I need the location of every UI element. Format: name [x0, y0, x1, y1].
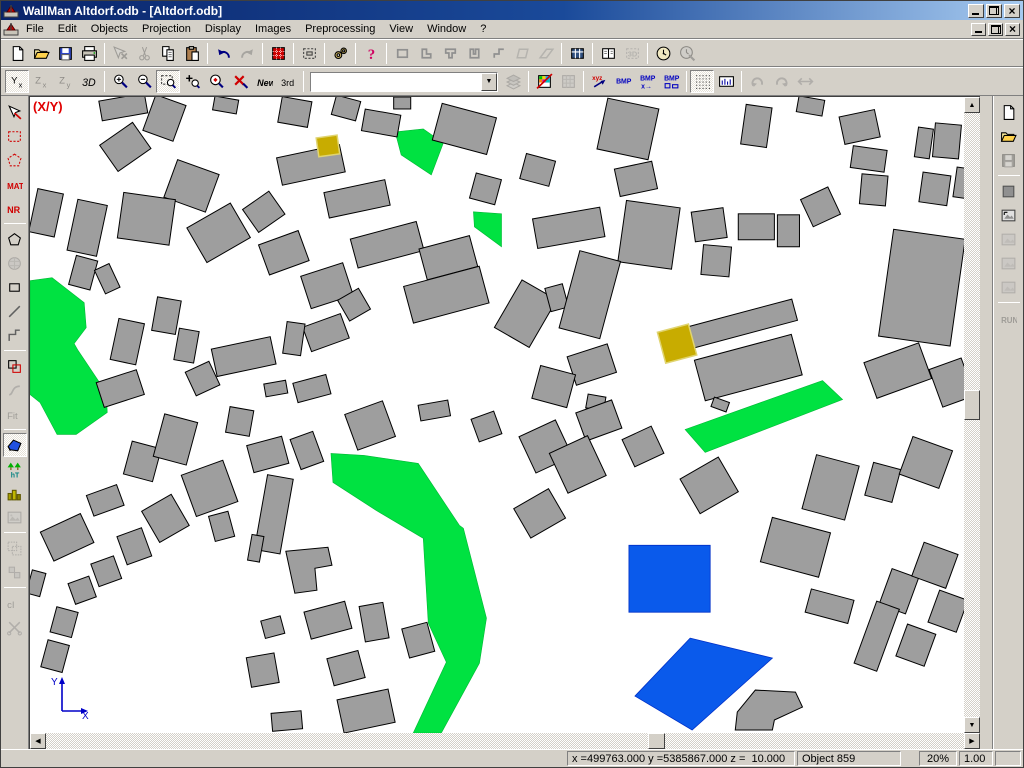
pixel-map-gray-button [556, 70, 580, 93]
svg-text:3D: 3D [627, 49, 637, 58]
vegetation-area[interactable] [30, 278, 107, 435]
settings-icon [332, 45, 349, 62]
toolbar-separator [4, 429, 26, 430]
building[interactable] [278, 97, 312, 127]
shape-rhombus-button [510, 42, 534, 65]
building[interactable] [520, 153, 556, 186]
building[interactable] [91, 556, 122, 587]
object-properties-button[interactable] [297, 42, 321, 65]
clock-edit-icon [679, 45, 696, 62]
curve-button [3, 378, 27, 402]
building[interactable] [303, 314, 350, 352]
zoom-reset-button[interactable] [228, 70, 252, 93]
paste-icon [184, 45, 201, 62]
view-zy-icon: Zy [57, 73, 74, 90]
ungroup-button [3, 560, 27, 584]
map-drawing[interactable] [30, 97, 964, 733]
building[interactable] [735, 690, 802, 730]
toolbar-separator [104, 43, 105, 64]
building[interactable] [99, 97, 148, 121]
new-icon [9, 45, 26, 62]
trees-icon: hT [6, 461, 23, 478]
vertical-scrollbar[interactable]: ▲ ▼ [964, 97, 980, 733]
building[interactable] [117, 528, 152, 565]
building[interactable] [760, 517, 830, 577]
building[interactable] [801, 187, 841, 227]
map-canvas[interactable]: (X/Y) Y X [30, 97, 964, 733]
copy-icon [160, 45, 177, 62]
building[interactable] [533, 207, 605, 248]
building[interactable] [110, 318, 144, 364]
building[interactable] [859, 174, 888, 206]
xyz-export-button[interactable]: xyz [587, 70, 611, 93]
building[interactable] [514, 489, 566, 538]
svg-text:BMP: BMP [616, 79, 632, 86]
shape-u-button[interactable] [462, 42, 486, 65]
axis-x-label: X [82, 711, 89, 719]
combine-objects-button[interactable] [3, 354, 27, 378]
minimize-icon [972, 13, 979, 15]
building[interactable] [865, 462, 901, 502]
help-button[interactable]: ? [359, 42, 383, 65]
building[interactable] [181, 460, 238, 516]
bmp-export-button[interactable]: BMPx→ [635, 70, 659, 93]
new-database-button[interactable] [997, 100, 1021, 124]
building[interactable] [30, 570, 46, 597]
building[interactable] [153, 414, 197, 465]
object-properties-icon [301, 45, 318, 62]
toolbar-separator [207, 43, 208, 64]
redo-icon [239, 45, 256, 62]
toolbar-separator [561, 43, 562, 64]
building[interactable] [896, 624, 936, 666]
building[interactable] [928, 590, 964, 632]
zoom-selected-button[interactable] [204, 70, 228, 93]
open-icon [33, 45, 50, 62]
table-icon [569, 45, 586, 62]
building[interactable] [226, 407, 254, 437]
bmp-button[interactable]: BMP [611, 70, 635, 93]
building[interactable] [40, 514, 94, 562]
building[interactable] [283, 322, 305, 356]
scroll-down-button[interactable]: ▼ [964, 717, 980, 733]
horizontal-scroll-thumb[interactable] [648, 733, 665, 749]
rotate-left-icon [749, 73, 766, 90]
ruler-icon [718, 73, 735, 90]
building[interactable] [331, 97, 360, 121]
database-toolbar: RUN [993, 96, 1023, 749]
building[interactable] [796, 97, 824, 116]
bmp-size-button[interactable]: BMP [659, 70, 683, 93]
layers-icon [505, 73, 522, 90]
building[interactable] [187, 203, 251, 263]
water-area[interactable] [629, 545, 710, 612]
grid-button[interactable] [690, 70, 714, 93]
open-database-button[interactable] [997, 124, 1021, 148]
svg-text:BMP: BMP [664, 75, 680, 82]
building[interactable] [701, 245, 732, 277]
toolbar-separator [4, 223, 26, 224]
save-database-icon [1000, 152, 1017, 169]
view-toolbar: YxZxZy3DNew3rd▼xyzBMPBMPx→BMP [1, 67, 1023, 96]
menu-projection[interactable]: Projection [135, 21, 198, 37]
building[interactable] [152, 297, 182, 335]
building[interactable] [850, 146, 887, 172]
building[interactable] [394, 97, 411, 109]
building[interactable] [350, 222, 424, 269]
new-button[interactable] [5, 42, 29, 65]
building[interactable] [261, 616, 285, 639]
bmp-export-icon: BMPx→ [639, 73, 656, 90]
shape-l-button[interactable] [414, 42, 438, 65]
select-polygon-button[interactable] [3, 148, 27, 172]
wallman-window: WallMan Altdorf.odb - [Altdorf.odb] × Fi… [0, 0, 1024, 768]
mdi-minimize-button[interactable] [971, 23, 986, 36]
building[interactable] [854, 601, 899, 671]
drawing-toolbar: MATNRFithTcI [1, 96, 29, 749]
window-title: WallMan Altdorf.odb - [Altdorf.odb] [23, 4, 968, 18]
toolbar-separator [386, 43, 387, 64]
mdi-close-button[interactable]: × [1005, 23, 1020, 36]
building[interactable] [86, 485, 124, 517]
material-square-button[interactable] [997, 179, 1021, 203]
toolbar-separator [686, 71, 687, 92]
building[interactable] [69, 255, 98, 290]
shape-t-button[interactable] [438, 42, 462, 65]
draw-cylinder-icon [6, 255, 23, 272]
building[interactable] [211, 337, 276, 377]
building[interactable] [694, 334, 802, 400]
minimize-button[interactable] [968, 4, 984, 18]
cut-icon [136, 45, 153, 62]
menu-objects[interactable]: Objects [84, 21, 135, 37]
split-view-icon [600, 45, 617, 62]
building[interactable] [532, 365, 576, 407]
building[interactable] [271, 711, 303, 732]
new-object-button[interactable]: New [252, 70, 276, 93]
third-button[interactable]: 3rd [276, 70, 300, 93]
building[interactable] [67, 199, 107, 256]
projection-label: (X/Y) [33, 99, 63, 114]
zoom-window-icon [160, 73, 177, 90]
building[interactable] [68, 576, 96, 604]
building[interactable] [402, 622, 435, 658]
shape-ramp-button [534, 42, 558, 65]
third-icon: 3rd [280, 73, 297, 90]
redo-button [235, 42, 259, 65]
mdi-restore-button[interactable] [988, 23, 1003, 36]
pixel-map-gray-icon [560, 73, 577, 90]
view-3d-mode-button[interactable]: 3D [77, 70, 101, 93]
toolbar-separator [592, 43, 593, 64]
building[interactable] [691, 208, 727, 242]
draw-line-button[interactable] [3, 299, 27, 323]
restore-icon [989, 6, 999, 15]
shape-s-icon [490, 45, 507, 62]
number-button[interactable]: NR [3, 196, 27, 220]
restore-button[interactable] [986, 4, 1002, 18]
toolbar-gap [980, 96, 993, 749]
building[interactable] [912, 542, 958, 588]
building[interactable] [41, 640, 70, 673]
svg-text:BMP: BMP [640, 75, 656, 82]
building[interactable] [929, 358, 964, 407]
open-button[interactable] [29, 42, 53, 65]
trees-button[interactable]: hT [3, 457, 27, 481]
building[interactable] [324, 180, 390, 218]
selected-object[interactable] [316, 135, 340, 157]
group-button [3, 536, 27, 560]
toolbar-separator [104, 71, 105, 92]
menu-images[interactable]: Images [248, 21, 298, 37]
building[interactable] [213, 97, 239, 114]
mdi-window-controls: × [971, 23, 1020, 36]
image-4-icon [1000, 279, 1017, 296]
building[interactable] [264, 380, 288, 397]
title-bar: WallMan Altdorf.odb - [Altdorf.odb] × [1, 1, 1023, 20]
building[interactable] [711, 397, 730, 412]
shape-u-icon [466, 45, 483, 62]
image-2-icon [1000, 231, 1017, 248]
building[interactable] [418, 400, 450, 421]
vegetation-area[interactable] [331, 453, 486, 733]
scroll-left-button[interactable]: ◀ [30, 733, 46, 749]
building[interactable] [597, 98, 659, 160]
building[interactable] [777, 215, 799, 247]
vegetation-button[interactable] [3, 433, 27, 457]
building[interactable] [622, 426, 664, 467]
undo-icon [215, 45, 232, 62]
clock-button[interactable] [651, 42, 675, 65]
view-zx-button: Zx [29, 70, 53, 93]
convert-ci-icon: cI [6, 595, 23, 612]
svg-text:Z: Z [35, 76, 41, 87]
paste-button[interactable] [180, 42, 204, 65]
settings-button[interactable] [328, 42, 352, 65]
building[interactable] [247, 436, 289, 472]
view-3d-icon: 3D [624, 45, 641, 62]
building[interactable] [839, 110, 880, 145]
run-button: RUN [997, 306, 1021, 330]
ruler-button[interactable] [714, 70, 738, 93]
building[interactable] [805, 589, 854, 624]
building[interactable] [471, 411, 502, 442]
vertical-scroll-thumb[interactable] [964, 390, 980, 420]
pixel-map-icon [536, 73, 553, 90]
building[interactable] [932, 123, 961, 159]
draw-polygon-button[interactable] [3, 227, 27, 251]
draw-polyline-button[interactable] [3, 323, 27, 347]
horizontal-scrollbar[interactable]: ◀ ▶ [30, 733, 980, 749]
svg-text:Z: Z [59, 76, 65, 87]
building[interactable] [738, 214, 774, 240]
building[interactable] [864, 343, 932, 398]
close-button[interactable]: × [1004, 4, 1020, 18]
building[interactable] [30, 189, 63, 237]
vegetation-area[interactable] [473, 212, 501, 247]
scroll-right-button[interactable]: ▶ [964, 733, 980, 749]
toolbar-separator [998, 175, 1020, 176]
toolbar-separator [528, 71, 529, 92]
building[interactable] [174, 328, 199, 363]
menu-display[interactable]: Display [198, 21, 248, 37]
draw-rectangle-button[interactable] [3, 275, 27, 299]
status-end-panel [995, 751, 1021, 766]
building[interactable] [741, 104, 772, 147]
building[interactable] [337, 689, 395, 733]
building[interactable] [618, 200, 680, 269]
building[interactable] [914, 127, 933, 159]
toolbar-separator [647, 43, 648, 64]
copy-button[interactable] [156, 42, 180, 65]
rotate-right-icon [773, 73, 790, 90]
building[interactable] [327, 650, 365, 685]
material-button[interactable]: MAT [3, 172, 27, 196]
mdi-restore-icon [991, 25, 1001, 34]
image-3-icon [1000, 255, 1017, 272]
shape-s-button[interactable] [486, 42, 510, 65]
clock-icon [655, 45, 672, 62]
new-object-icon: New [256, 73, 273, 90]
rotate-right-button [769, 70, 793, 93]
buildings-button[interactable] [3, 481, 27, 505]
building[interactable] [304, 601, 352, 639]
building[interactable] [953, 167, 964, 199]
menu-view[interactable]: View [382, 21, 420, 37]
building[interactable] [243, 191, 285, 232]
curve-icon [6, 382, 23, 399]
table-button[interactable] [565, 42, 589, 65]
zoom-selected-icon [208, 73, 225, 90]
xyz-export-icon: xyz [591, 73, 608, 90]
buildings-icon [6, 485, 23, 502]
object-selector-combo[interactable]: ▼ [310, 72, 498, 92]
building[interactable] [143, 97, 186, 141]
building[interactable] [209, 511, 235, 541]
clock-edit-button [675, 42, 699, 65]
undo-button[interactable] [211, 42, 235, 65]
svg-text:cI: cI [7, 599, 14, 610]
image-size-button[interactable] [997, 203, 1021, 227]
image-4-button [997, 275, 1021, 299]
menu-bar: FileEditObjectsProjectionDisplayImagesPr… [1, 20, 1023, 39]
building[interactable] [919, 172, 951, 206]
combo-dropdown-button[interactable]: ▼ [481, 73, 497, 91]
building[interactable] [802, 455, 859, 520]
menu-file[interactable]: File [19, 21, 51, 37]
building[interactable] [359, 602, 389, 642]
svg-text:New: New [257, 78, 273, 88]
building[interactable] [117, 192, 175, 245]
select-rect-button[interactable] [3, 124, 27, 148]
toolbar-separator [355, 43, 356, 64]
material-square-icon [1000, 183, 1017, 200]
draw-line-icon [6, 303, 23, 320]
svg-text:Y: Y [11, 76, 18, 87]
object-selector-value [311, 73, 481, 91]
bmp-size-icon: BMP [663, 73, 680, 90]
building[interactable] [879, 229, 964, 346]
toolbar-separator [4, 350, 26, 351]
select-polygon-icon [6, 152, 23, 169]
split-view-button[interactable] [596, 42, 620, 65]
building[interactable] [469, 173, 501, 205]
svg-text:x: x [18, 80, 22, 89]
zoom-in-button[interactable] [108, 70, 132, 93]
building[interactable] [286, 547, 332, 593]
building[interactable] [614, 161, 657, 196]
scroll-up-button[interactable]: ▲ [964, 97, 980, 113]
svg-text:x→: x→ [641, 83, 652, 90]
grid-icon [694, 73, 711, 90]
save-button[interactable] [53, 42, 77, 65]
svg-text:Fit: Fit [7, 410, 18, 421]
menu-window[interactable]: Window [420, 21, 473, 37]
building[interactable] [345, 401, 396, 450]
select-cross-icon [112, 45, 129, 62]
svg-text:y: y [66, 80, 70, 89]
zoom-pan-button[interactable] [180, 70, 204, 93]
toolbar-separator [4, 532, 26, 533]
pixel-map-button[interactable] [532, 70, 556, 93]
save-database-button [997, 148, 1021, 172]
convert-ci-button: cI [3, 591, 27, 615]
building[interactable] [559, 251, 620, 339]
material-database-button[interactable] [266, 42, 290, 65]
building[interactable] [246, 653, 279, 687]
material-icon: MAT [6, 176, 23, 193]
building[interactable] [50, 607, 78, 638]
shape-rectangle-button[interactable] [390, 42, 414, 65]
toolbar-separator [998, 302, 1020, 303]
view-yx-button[interactable]: Yx [5, 70, 29, 93]
view-3d-button: 3D [620, 42, 644, 65]
cut-object-button [3, 615, 27, 639]
vegetation-icon [6, 437, 23, 454]
building[interactable] [576, 400, 622, 441]
building[interactable] [404, 266, 489, 323]
shape-t-icon [442, 45, 459, 62]
group-icon [6, 540, 23, 557]
building[interactable] [248, 534, 264, 562]
zoom-pan-icon [184, 73, 201, 90]
rotate-left-button [745, 70, 769, 93]
menu-edit[interactable]: Edit [51, 21, 84, 37]
menu-[interactable]: ? [473, 21, 493, 37]
fit-icon: Fit [6, 406, 23, 423]
building[interactable] [899, 436, 952, 488]
zoom-window-button[interactable] [156, 70, 180, 93]
building[interactable] [361, 109, 400, 137]
building[interactable] [96, 370, 144, 408]
print-button[interactable] [77, 42, 101, 65]
building[interactable] [680, 457, 738, 514]
building[interactable] [293, 375, 331, 403]
toolbar-separator [324, 43, 325, 64]
status-object-info: Object 859 [797, 751, 901, 766]
building[interactable] [259, 231, 310, 275]
select-arrow-button[interactable] [3, 100, 27, 124]
ungroup-icon [6, 564, 23, 581]
building[interactable] [142, 494, 190, 542]
zoom-out-icon [136, 73, 153, 90]
building[interactable] [94, 264, 120, 294]
menu-preprocessing[interactable]: Preprocessing [298, 21, 382, 37]
combine-objects-icon [6, 358, 23, 375]
building[interactable] [290, 431, 324, 469]
zoom-reset-icon [232, 73, 249, 90]
zoom-out-button[interactable] [132, 70, 156, 93]
